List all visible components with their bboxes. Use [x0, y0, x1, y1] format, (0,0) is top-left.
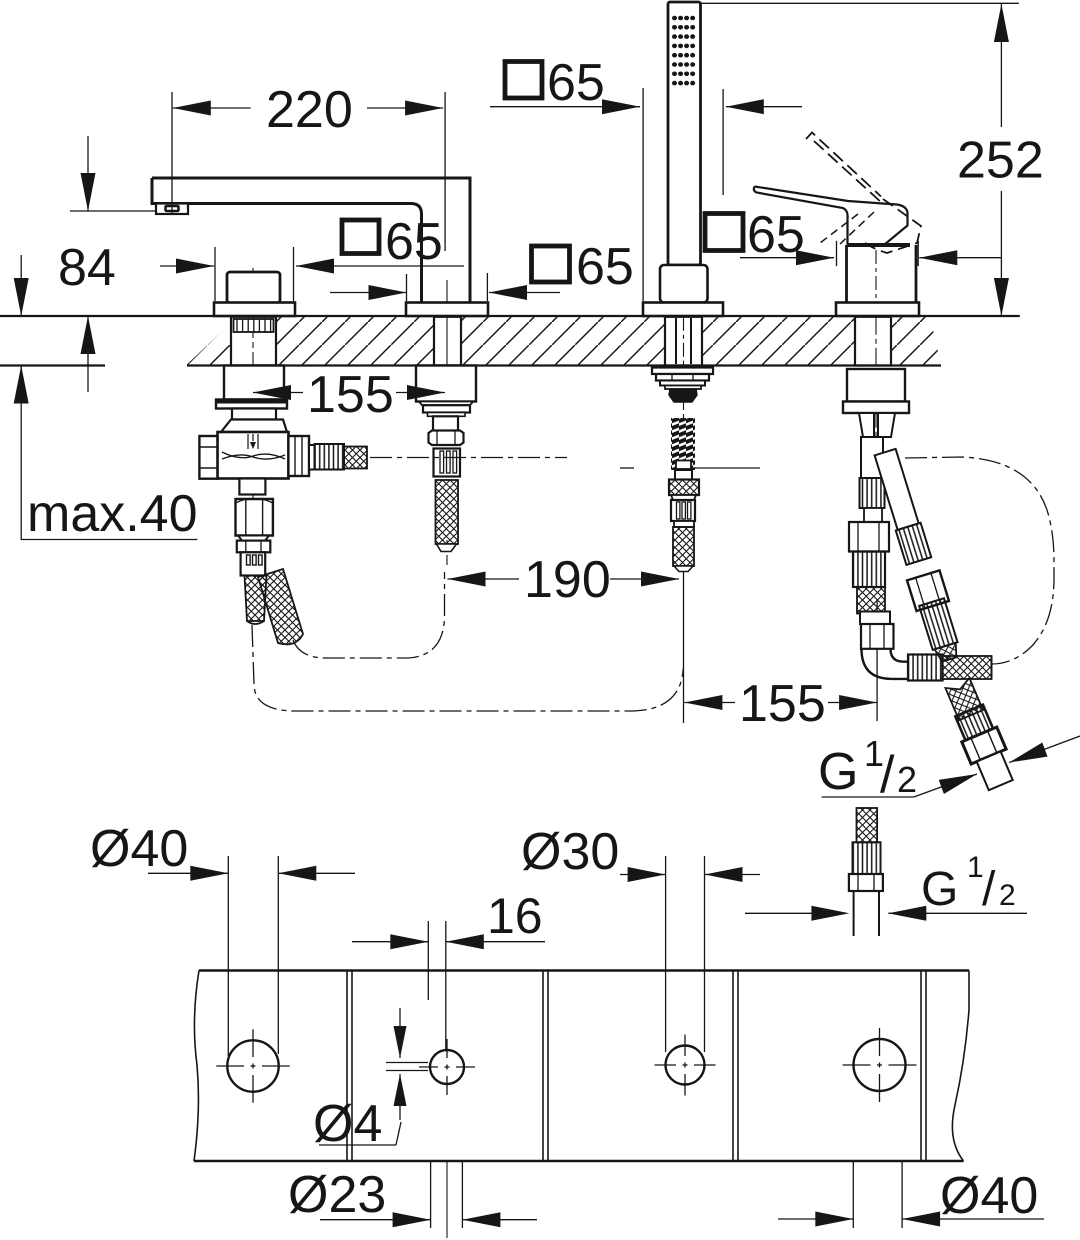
svg-text:155: 155: [307, 366, 394, 424]
svg-text:16: 16: [487, 888, 543, 944]
svg-text:G: G: [921, 863, 958, 916]
svg-text:2: 2: [999, 879, 1016, 912]
svg-text:252: 252: [957, 132, 1044, 190]
svg-text:65: 65: [547, 54, 605, 112]
svg-text:65: 65: [385, 213, 443, 271]
svg-text:190: 190: [524, 551, 611, 609]
svg-text:max.40: max.40: [27, 485, 198, 543]
svg-text:155: 155: [739, 675, 826, 733]
svg-text:G: G: [818, 743, 858, 801]
svg-text:84: 84: [58, 239, 116, 297]
svg-text:65: 65: [576, 238, 634, 296]
svg-text:Ø23: Ø23: [288, 1166, 386, 1224]
svg-text:Ø4: Ø4: [313, 1095, 382, 1153]
svg-text:Ø40: Ø40: [90, 820, 188, 878]
svg-text:/: /: [880, 746, 895, 804]
svg-text:220: 220: [266, 81, 353, 139]
svg-text:Ø30: Ø30: [521, 823, 619, 881]
svg-text:2: 2: [897, 759, 917, 800]
svg-text:/: /: [982, 863, 996, 916]
svg-text:Ø40: Ø40: [940, 1167, 1038, 1225]
